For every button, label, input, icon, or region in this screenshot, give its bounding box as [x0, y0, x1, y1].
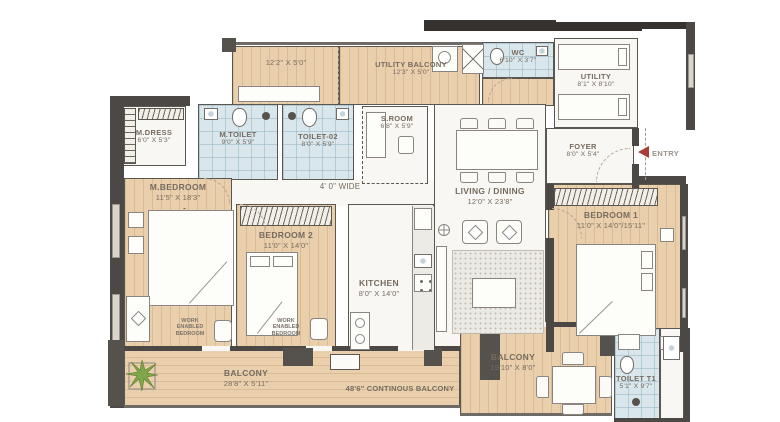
balcony-top-dims: 12'2" X 5'0"	[240, 58, 332, 67]
bedroom2-desk-chair	[310, 318, 328, 340]
fan-icon	[438, 224, 450, 236]
bed-fold-line	[579, 301, 613, 334]
m-dress-name: M.DRESS	[124, 128, 184, 137]
s-room-name: S.ROOM	[368, 114, 426, 123]
balcony-chair-left	[536, 376, 549, 398]
balcony-chair-top	[562, 352, 584, 365]
window-m-bedroom-1	[112, 204, 120, 258]
pillar-balcony-top-cap	[222, 38, 236, 52]
label-m-dress: M.DRESS 6'0" X 5'3"	[124, 128, 184, 146]
tv-unit	[436, 246, 447, 332]
bedroom1-side-table-1	[660, 228, 674, 242]
bedroom1-pillow-1	[641, 251, 653, 269]
window-m-bedroom-2	[112, 294, 120, 342]
foyer-dims: 8'0" X 5'4"	[548, 151, 618, 159]
kitchen-counter-2	[350, 312, 370, 350]
window-right-top	[688, 54, 694, 88]
kitchen-name: KITCHEN	[348, 278, 410, 289]
wall-bedroom1-top-right	[634, 176, 686, 184]
burner-icon-2	[355, 334, 365, 344]
m-bedroom-side-table-1	[128, 212, 144, 228]
balcony-chair-bottom	[562, 404, 584, 415]
bedroom2-pillow-2	[273, 256, 293, 267]
m-bedroom-sofa	[126, 296, 150, 342]
wall-bedroom1-left-top	[546, 184, 554, 210]
utility-dims: 8'1" X 8'10"	[556, 81, 636, 89]
armchair-2	[496, 220, 522, 244]
armchair-cushion	[502, 225, 518, 241]
label-wc: WC 6'10" X 3'7"	[484, 48, 552, 66]
utility-bed-top-pillow	[618, 48, 627, 66]
wall-bedroom1-right	[680, 184, 688, 352]
window-bedroom1-right-2	[682, 288, 686, 318]
coffee-table	[472, 278, 516, 308]
label-balcony-main: BALCONY 28'8" X 5'11"	[196, 368, 296, 388]
armchair-cushion	[468, 225, 484, 241]
label-foyer: FOYER 8'0" X 5'4"	[548, 142, 618, 160]
wc-name: WC	[484, 48, 552, 57]
wall-toilet-t1-bottom	[614, 418, 690, 422]
label-m-toilet: M.TOILET 9'0" X 5'9"	[200, 130, 276, 148]
m-bedroom-desk-chair	[214, 320, 232, 342]
window-bedroom1-right-1	[682, 216, 686, 250]
m-bedroom-work-note: WORK ENABLED BEDROOM	[168, 318, 212, 337]
burner-icon-1	[355, 318, 365, 328]
toilet-02-name: TOILET-02	[284, 132, 352, 141]
label-utility: UTILITY 8'1" X 8'10"	[556, 72, 636, 90]
label-living-dining: LIVING / DINING 12'0" X 23'8"	[438, 186, 542, 206]
sofa-cushion	[131, 311, 147, 327]
balcony-table	[552, 366, 596, 404]
m-bedroom-bed	[148, 210, 234, 306]
toilet-02-toilet-icon	[302, 108, 317, 127]
dining-chair-2	[488, 118, 506, 129]
bedroom2-work-note: WORK ENABLED BEDROOM	[264, 318, 308, 337]
wall-above-utility	[554, 22, 642, 31]
label-toilet-02: TOILET-02 8'0" X 5'9"	[284, 132, 352, 150]
pillar-balcony-left-end	[108, 340, 124, 406]
bedroom1-bed	[576, 244, 656, 336]
utility-balcony-name: UTILITY BALCONY	[348, 60, 474, 69]
plant-icon	[126, 358, 158, 392]
wall-above-wc	[424, 20, 556, 31]
label-s-room: S.ROOM 6'8" X 5'9"	[368, 114, 426, 132]
kitchen-sink-icon	[414, 254, 432, 268]
entry-arrow-icon	[638, 146, 649, 158]
balcony-divider-line	[338, 48, 339, 103]
wall-top-right-connector	[640, 22, 690, 29]
m-toilet-name: M.TOILET	[200, 130, 276, 139]
m-toilet-shower-icon	[262, 112, 270, 120]
label-toilet-t1: TOILET T1 5'1" X 9'7"	[606, 374, 666, 392]
label-utility-balcony: UTILITY BALCONY 12'3" X 5'0"	[348, 60, 474, 78]
balcony-top-rail	[230, 42, 482, 45]
utility-balcony-dims: 12'3" X 5'0"	[348, 69, 474, 77]
kitchen-hob-icon	[414, 274, 432, 292]
dining-chair-4	[460, 172, 478, 183]
pillar-balcony-mid-1	[283, 348, 313, 366]
utility-name: UTILITY	[556, 72, 636, 81]
utility-bed-bottom-pillow	[618, 98, 627, 116]
kitchen-dims: 8'0" X 14'0"	[348, 289, 410, 298]
label-corridor: 4' 0" WIDE	[300, 182, 380, 192]
toilet-02-sink-icon	[336, 108, 349, 120]
dining-chair-5	[488, 172, 506, 183]
m-toilet-sink-icon	[204, 108, 218, 120]
wc-dims: 6'10" X 3'7"	[484, 57, 552, 65]
toilet-02-shower-icon	[288, 112, 296, 120]
dining-chair-3	[516, 118, 534, 129]
balcony-right-rail	[460, 413, 612, 416]
balcony-main-rail	[124, 405, 460, 408]
wall-entry-stub-top	[632, 128, 639, 146]
wall-bedroom1-left-lower	[546, 238, 554, 352]
living-dining-name: LIVING / DINING	[438, 186, 542, 197]
balcony-ac-unit	[330, 354, 360, 370]
label-balcony-top: 12'2" X 5'0"	[240, 58, 332, 67]
label-continuous-balcony: 48'6" CONTINOUS BALCONY	[328, 384, 472, 393]
label-bedroom-2: BEDROOM 2 11'0" X 14'0"	[238, 230, 334, 250]
dining-chair-1	[460, 118, 478, 129]
m-bedroom-dims: 11'5" X 18'3"	[128, 193, 228, 202]
s-room-dims: 6'8" X 5'9"	[368, 123, 426, 131]
wall-toilet-t1-right	[684, 328, 690, 420]
armchair-1	[462, 220, 488, 244]
bedroom-2-dims: 11'0" X 14'0"	[238, 241, 334, 250]
corridor-width-label: 4' 0" WIDE	[300, 182, 380, 192]
balcony-main-name: BALCONY	[196, 368, 296, 379]
balcony-right-name: BALCONY	[468, 352, 558, 363]
label-balcony-right: BALCONY 19'10" X 8'0"	[468, 352, 558, 372]
dining-table	[456, 130, 538, 170]
m-dress-dims: 6'0" X 5'3"	[124, 137, 184, 145]
toilet-t1-dims: 5'1" X 9'7"	[606, 383, 666, 391]
continuous-balcony-label: 48'6" CONTINOUS BALCONY	[328, 384, 472, 393]
bedroom-1-name: BEDROOM 1	[550, 210, 672, 221]
m-bedroom-side-table-2	[128, 236, 144, 254]
toilet-t1-name: TOILET T1	[606, 374, 666, 383]
label-bedroom-1: BEDROOM 1 11'0" X 14'0"/15'11"	[550, 210, 672, 230]
balcony-right-dims: 19'10" X 8'0"	[468, 363, 558, 372]
balcony-main-dims: 28'8" X 5'11"	[196, 379, 296, 388]
toilet-t1-vanity	[618, 334, 640, 350]
bedroom1-pillow-2	[641, 273, 653, 291]
toilet-t1-toilet-icon	[620, 356, 634, 374]
bed-fold-line	[189, 261, 227, 303]
m-bedroom-name: M.BEDROOM	[128, 182, 228, 193]
dining-chair-6	[516, 172, 534, 183]
bedroom-2-name: BEDROOM 2	[238, 230, 334, 241]
toilet-t1-basin-icon	[663, 336, 680, 360]
m-dress-wardrobe-hatch	[138, 108, 184, 120]
bedroom2-pillow-1	[250, 256, 270, 267]
m-toilet-toilet-icon	[232, 108, 247, 127]
m-toilet-dims: 9'0" X 5'9"	[200, 139, 276, 147]
toilet-t1-shower-icon	[632, 398, 640, 406]
label-kitchen: KITCHEN 8'0" X 14'0"	[348, 278, 410, 298]
toilet-02-dims: 8'0" X 5'9"	[284, 141, 352, 149]
floor-plan-canvas: ENTRY 12'2" X 5'0" UTILITY BALCONY 12'3"…	[0, 0, 780, 422]
living-dining-dims: 12'0" X 23'8"	[438, 197, 542, 206]
label-m-bedroom: M.BEDROOM 11'5" X 18'3"	[128, 182, 228, 202]
entry-label: ENTRY	[652, 149, 679, 158]
m-bedroom-slippers-icon	[178, 203, 190, 209]
pillar-balcony-mid-2	[424, 348, 442, 366]
foyer-name: FOYER	[548, 142, 618, 151]
bedroom1-wardrobe-hatch	[554, 188, 658, 206]
bedroom-1-dims: 11'0" X 14'0"/15'11"	[550, 221, 672, 230]
s-room-chair	[398, 136, 414, 154]
kitchen-fridge	[414, 208, 432, 230]
planter-box	[238, 86, 320, 102]
door-gap-m-bedroom	[202, 346, 230, 351]
